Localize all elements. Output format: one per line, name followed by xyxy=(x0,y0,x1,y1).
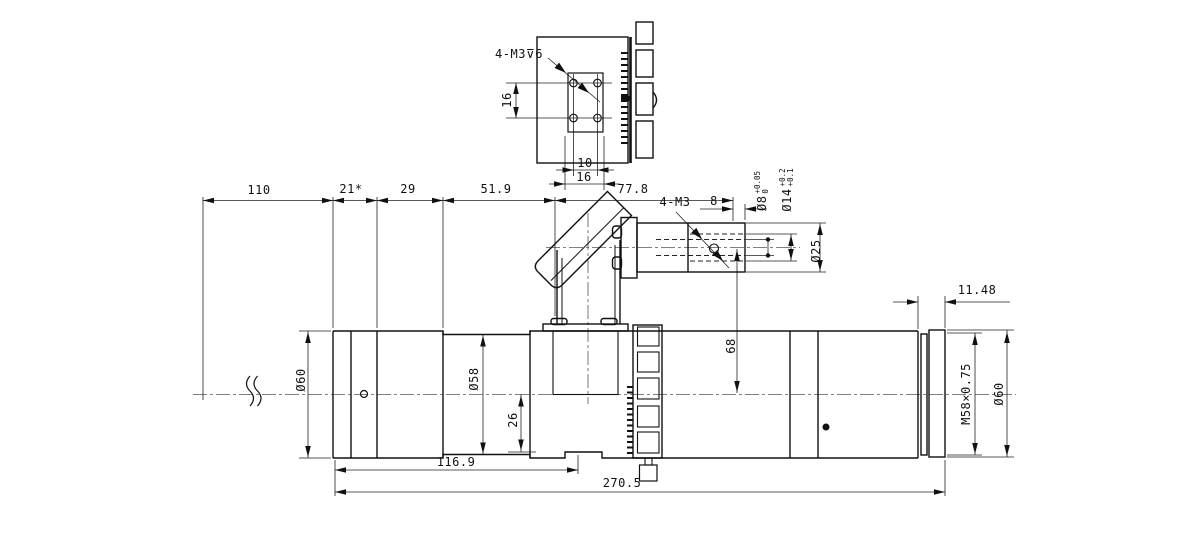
dim-68: 68 xyxy=(724,338,738,353)
top-view-dim-10: 10 xyxy=(577,156,592,170)
dia14-tolerance: +0.2 +0.1 xyxy=(779,168,796,186)
dia8-tolerance: +0.05 0 xyxy=(754,171,771,194)
dim-26: 26 xyxy=(506,412,520,427)
dim-270-5: 270.5 xyxy=(603,476,642,490)
dia8-value: Ø8 xyxy=(755,196,769,211)
dim-116-9: 116.9 xyxy=(437,455,476,469)
top-view-dim-16-vertical: 16 xyxy=(500,92,514,107)
dim-dia58: Ø58 xyxy=(467,367,481,390)
top-view-thread-note: 4-M3⊽6 xyxy=(495,47,543,61)
dim-dia60-right: Ø60 xyxy=(992,382,1006,405)
dim-8: 8 xyxy=(710,194,718,208)
dim-29: 29 xyxy=(400,182,415,196)
dim-dia60-left: Ø60 xyxy=(294,368,308,391)
elbow-thread-note: 4-M3 xyxy=(660,195,691,209)
dim-51-9: 51.9 xyxy=(481,182,512,196)
dim-dia25: Ø25 xyxy=(809,239,823,262)
dim-11-48: 11.48 xyxy=(958,283,997,297)
drawing-linework xyxy=(0,0,1200,540)
dia14-value: Ø14 xyxy=(780,188,794,211)
drawing-canvas: 4-M3⊽6 16 10 16 110 21* 29 51.9 77.8 4-M… xyxy=(0,0,1200,540)
thread-spec-m58: M58×0.75 xyxy=(959,363,973,425)
dim-21: 21* xyxy=(339,182,362,196)
top-view-dim-16-horizontal: 16 xyxy=(576,170,591,184)
dim-110: 110 xyxy=(247,183,270,197)
dim-dia8: Ø8 +0.05 0 xyxy=(754,171,771,211)
dim-77-8: 77.8 xyxy=(618,182,649,196)
dim-dia14: Ø14 +0.2 +0.1 xyxy=(779,168,796,211)
